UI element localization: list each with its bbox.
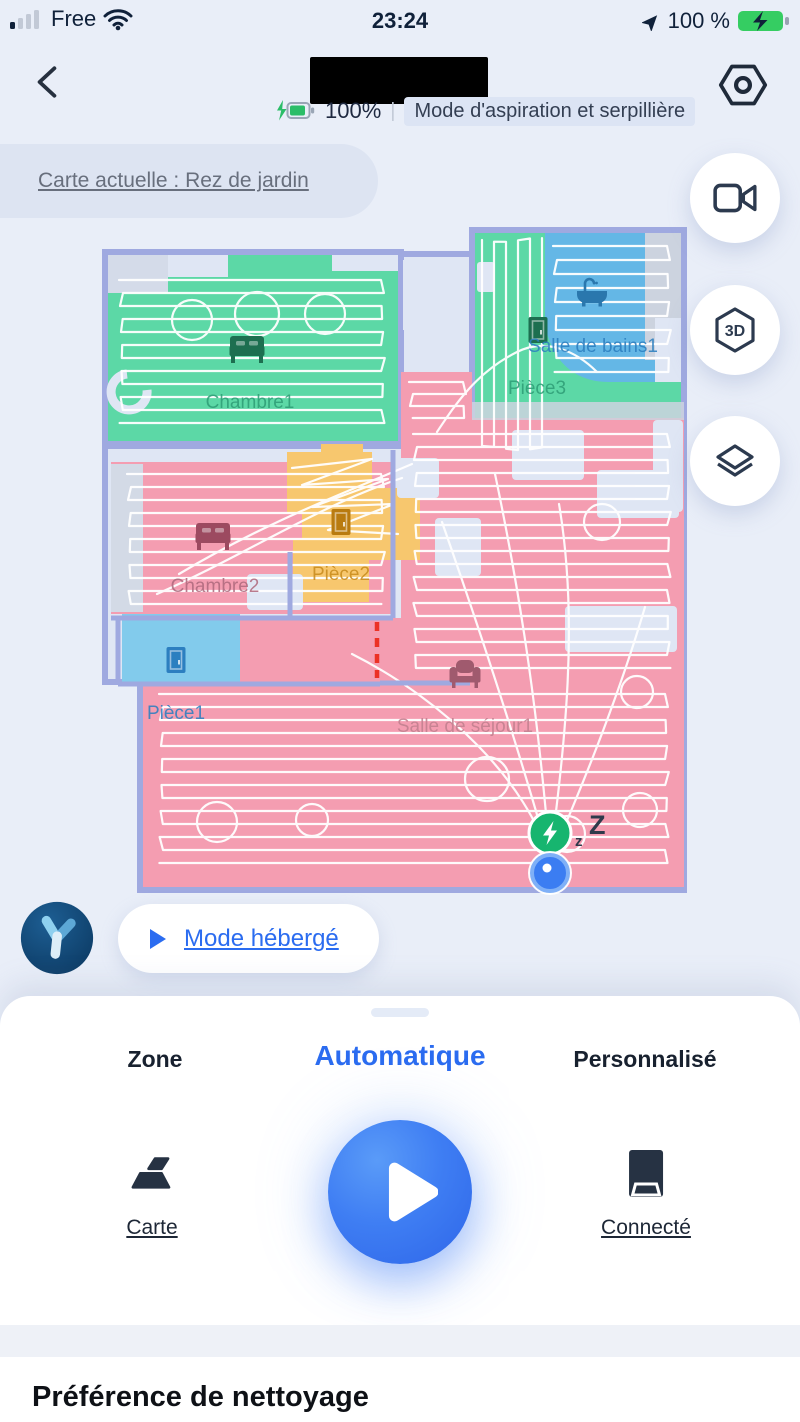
current-map-label: Carte actuelle : Rez de jardin [38, 169, 309, 193]
robot-vacuum-screen: Free 23:24 100 % [0, 0, 800, 1422]
map-layers-icon [127, 1154, 177, 1202]
battery-charging-icon [737, 8, 790, 34]
cleaning-map[interactable]: Chambre1 Salle de bains1 Pièce3 Chambre2… [97, 222, 697, 897]
section-divider [0, 1325, 800, 1357]
back-button[interactable] [32, 64, 62, 100]
start-cleaning-button[interactable] [328, 1120, 472, 1264]
hosted-mode-label: Mode hébergé [184, 925, 339, 953]
room-label-salle-de-bains1[interactable]: Salle de bains1 [528, 336, 658, 357]
status-bar: Free 23:24 100 % [0, 0, 800, 44]
map-action-button[interactable]: Carte [126, 1154, 177, 1240]
current-map-link[interactable]: Carte actuelle : Rez de jardin [0, 144, 378, 218]
charging-dock-marker [529, 812, 571, 854]
settings-hexagon-icon [718, 60, 768, 110]
yeedi-logo-icon [19, 900, 95, 976]
room-label-piece3[interactable]: Pièce3 [508, 378, 566, 399]
hosted-mode-button[interactable]: Mode hébergé [118, 904, 379, 973]
tab-personnalise[interactable]: Personnalisé [573, 1046, 716, 1073]
control-sheet: Zone Automatique Personnalisé Carte Conn… [0, 996, 800, 1326]
dock-status-button[interactable]: Connecté [601, 1148, 691, 1240]
battery-percent-label: 100 % [668, 8, 730, 34]
location-arrow-icon [642, 12, 661, 31]
map-action-label: Carte [126, 1216, 177, 1240]
dock-status-label: Connecté [601, 1216, 691, 1240]
room-label-piece2[interactable]: Pièce2 [312, 564, 370, 585]
3d-hexagon-icon: 3D [710, 305, 760, 355]
preferences-section: Préférence de nettoyage [0, 1357, 800, 1422]
tab-automatique[interactable]: Automatique [314, 1040, 485, 1072]
sleep-z-small: z [575, 833, 583, 850]
play-icon [376, 1159, 438, 1225]
play-small-icon [148, 927, 168, 951]
sleep-z-big: Z [589, 810, 606, 840]
robot-status-row: 100% | Mode d'aspiration et serpillière [276, 94, 695, 128]
map-canvas: Chambre1 Salle de bains1 Pièce3 Chambre2… [97, 222, 697, 897]
door-icon [167, 647, 186, 673]
assistant-logo-button[interactable] [19, 900, 95, 976]
sheet-drag-handle[interactable] [371, 1008, 429, 1017]
separator: | [390, 100, 395, 123]
3d-label: 3D [725, 323, 745, 340]
robot-marker[interactable] [528, 851, 572, 895]
room-label-chambre1[interactable]: Chambre1 [206, 392, 295, 413]
back-chevron-icon [32, 64, 62, 100]
charging-battery-icon [276, 100, 316, 122]
dock-icon [625, 1148, 667, 1202]
robot-battery-label: 100% [325, 98, 381, 124]
cleaning-mode-badge: Mode d'aspiration et serpillière [404, 97, 695, 126]
room-label-salle-de-sejour1[interactable]: Salle de séjour1 [397, 716, 533, 737]
video-camera-icon [712, 180, 758, 216]
tab-zone[interactable]: Zone [128, 1046, 183, 1073]
settings-button[interactable] [718, 60, 768, 110]
room-label-chambre2[interactable]: Chambre2 [171, 576, 260, 597]
3d-view-button[interactable]: 3D [690, 285, 780, 375]
room-label-piece1[interactable]: Pièce1 [147, 703, 205, 724]
video-button[interactable] [690, 153, 780, 243]
door-icon [332, 509, 351, 535]
section-title: Préférence de nettoyage [32, 1381, 369, 1414]
layers-button[interactable] [690, 416, 780, 506]
layers-icon [711, 440, 759, 482]
